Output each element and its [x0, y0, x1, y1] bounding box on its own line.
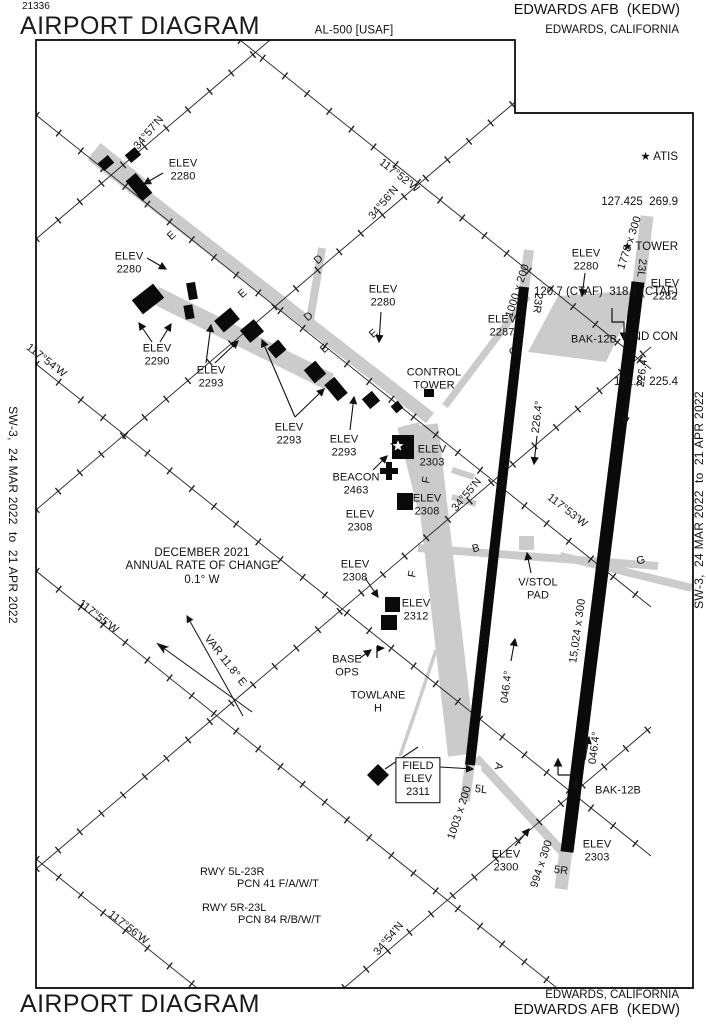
footer-title: AIRPORT DIAGRAM	[20, 990, 260, 1019]
runway-5r-label: 5R	[553, 864, 569, 878]
diamond-marker	[367, 764, 389, 786]
elev-2280-label-1: ELEV 2280	[169, 157, 198, 183]
elev-2303-label-1: ELEV 2303	[418, 443, 447, 469]
cross-icon	[380, 462, 398, 480]
control-tower-label: CONTROL TOWER	[407, 366, 461, 392]
elev-2290-label: ELEV 2290	[143, 342, 172, 368]
elev-2282-label: ELEV 2282	[651, 277, 680, 303]
frequency-block: ★ ATIS 127.425 269.9 ★ TOWER 120.7 (CTAF…	[534, 120, 678, 405]
ground-frequencies: 121.8 225.4	[534, 375, 678, 390]
elev-2280-label-2: ELEV 2280	[115, 250, 144, 276]
elev-2293-label-1: ELEV 2293	[197, 364, 226, 390]
elev-2280-label-3: ELEV 2280	[369, 283, 398, 309]
atis-frequencies: 127.425 269.9	[534, 195, 678, 210]
elev-2300-label: ELEV 2300	[492, 848, 521, 874]
chart-number: 21336	[22, 1, 50, 12]
edge-date-right: SW-3, 24 MAR 2022 to 21 APR 2022	[692, 391, 706, 609]
airport-name-header: EDWARDS AFB (KEDW)	[514, 2, 680, 18]
elev-2280-label-4: ELEV 2280	[572, 247, 601, 273]
elev-2312-label: ELEV 2312	[402, 597, 431, 623]
vstol-pad-label: V/STOL PAD	[518, 576, 558, 602]
airport-city-header: EDWARDS, CALIFORNIA	[545, 24, 679, 36]
towlane-h-label: TOWLANE H	[351, 689, 406, 715]
variation-arrows	[158, 616, 252, 716]
pcn-84-note: PCN 84 R/B/W/T	[238, 914, 321, 927]
elev-2308-label-3: ELEV 2308	[341, 558, 370, 584]
field-elev-point	[476, 765, 481, 770]
elev-2308-label-2: ELEV 2308	[346, 508, 375, 534]
footer-city: EDWARDS, CALIFORNIA	[545, 989, 679, 1001]
page-title: AIRPORT DIAGRAM	[20, 12, 260, 41]
footer-airport-name: EDWARDS AFB (KEDW)	[514, 1002, 680, 1018]
edge-date-left: SW-3, 24 MAR 2022 to 21 APR 2022	[6, 406, 20, 624]
airport-diagram-page: 21336 AIRPORT DIAGRAM AL-500 [USAF] EDWA…	[0, 0, 706, 1024]
magnetic-variation-note: DECEMBER 2021 ANNUAL RATE OF CHANGE 0.1°…	[126, 547, 279, 587]
tower-label: ★ TOWER	[534, 240, 678, 255]
atis-label: ★ ATIS	[534, 150, 678, 165]
runway-23r-label: 23R	[529, 292, 544, 314]
elev-2293-label-3: ELEV 2293	[330, 433, 359, 459]
elev-2303-label-2: ELEV 2303	[583, 838, 612, 864]
pcn-41-note: PCN 41 F/A/W/T	[237, 878, 319, 891]
base-ops-flag-icon	[377, 645, 385, 658]
runway-23l-label: 23L	[634, 258, 649, 278]
beacon-label: BEACON 2463	[332, 471, 379, 497]
bak-12b-label-top: BAK-12B	[571, 334, 617, 347]
elev-2293-label-2: ELEV 2293	[275, 421, 304, 447]
field-elev-box: FIELD ELEV 2311	[395, 757, 440, 803]
elev-2308-label-1: ELEV 2308	[413, 492, 442, 518]
procedure-id: AL-500 [USAF]	[315, 24, 394, 37]
bak-12b-label-bottom: BAK-12B	[595, 785, 641, 798]
vstol-pad-shape	[519, 536, 534, 550]
rwy-5r-23l-note: RWY 5R-23L	[202, 902, 266, 915]
runway-5l-label: 5L	[474, 783, 488, 797]
rwy-5l-23r-note: RWY 5L-23R	[200, 866, 264, 879]
base-ops-label: BASE OPS	[332, 653, 362, 679]
